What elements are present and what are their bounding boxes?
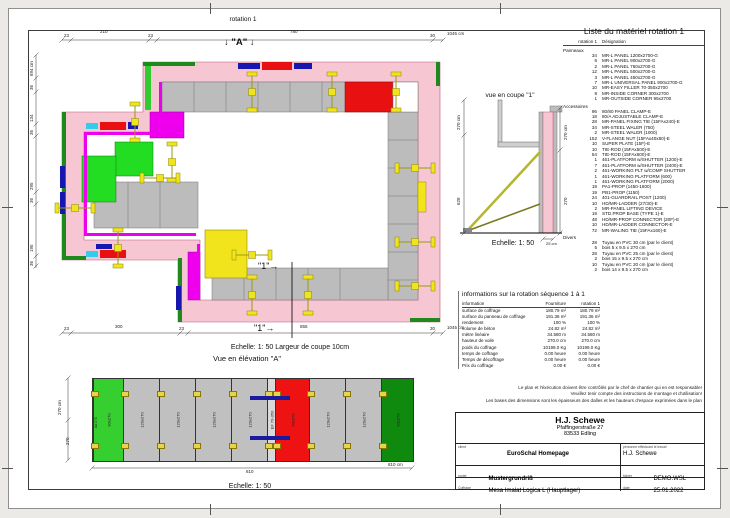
designation-column-header: Désignation: [602, 39, 626, 44]
material-designation: MR-WALING TIE (15FAx160)-E: [602, 228, 667, 233]
client-cell: client EuroSchal Homepage: [456, 444, 621, 465]
dim-label: 36: [30, 198, 35, 203]
material-designation: MR-OUTSIDE CORNER 95x2700: [602, 96, 671, 101]
dim-label: 195: [30, 244, 35, 252]
material-rows-panneaux: 34 MR-L PANEL 1200x2700-G 6 MR-L PANEL 9…: [563, 53, 705, 102]
date-cell: date 25.01.2022: [621, 478, 704, 491]
rotation-info-table: informations sur la rotation séquence 1 …: [458, 291, 600, 369]
arrow-down-icon: ↓: [250, 37, 255, 48]
dim-label: 295: [30, 182, 35, 190]
dim-label: 694 cm: [30, 61, 35, 76]
title-block: H.J. Schewe Pfaffingerstraße 27 83533 Ed…: [455, 412, 705, 490]
material-designation: bois 14 x 9.5 x 270 cm: [602, 267, 648, 272]
material-list-header: rotation 1 Désignation: [563, 39, 705, 46]
material-row: 1 MR-OUTSIDE CORNER 95x2700: [563, 96, 705, 101]
formwork-value: Mesa Imalat Logica L (Hauptlager): [488, 488, 580, 494]
dim-label: 23: [148, 34, 153, 39]
disclaimer-line: Les bases des dimensions sont les épaiss…: [370, 398, 702, 404]
section-cut-marker: "1"→: [254, 324, 274, 334]
crop-mark: [500, 3, 501, 14]
elevation-scale: Echelle: 1: 50: [180, 483, 320, 491]
section-title: vue en coupe "1": [460, 92, 560, 99]
elevation-panel: 120x270: [159, 379, 195, 461]
elevation-panel: 120x270: [309, 379, 345, 461]
plan-title: rotation 1: [198, 16, 288, 23]
panel-size-label: 90x270: [395, 413, 400, 426]
date-value: 25.01.2022: [653, 488, 683, 494]
dim-label: 780: [290, 30, 298, 35]
material-list: Liste du matériel rotation 1 rotation 1 …: [563, 26, 705, 272]
drawing-sheet: rotation 1 ↓ "A" ↓ "1"→ "1"→ 23 210 23 7…: [0, 0, 730, 518]
crop-mark: [210, 504, 211, 515]
elevation-panel: 120x270: [231, 379, 267, 461]
dim-label: 855: [300, 325, 308, 330]
crop-mark: [717, 468, 728, 469]
panel-size-label: EF 70-350: [269, 411, 274, 430]
plan-scale-note: Echelle: 1: 50 Largeur de coupe 10cm: [160, 344, 420, 352]
dim-label: 300: [115, 325, 123, 330]
info-row: Prix du coffrage 0.00 € 0.00 €: [462, 363, 600, 369]
panel-size-label: 90x270: [290, 413, 295, 426]
waler-bar: [250, 436, 290, 440]
info-rows: surface de coffrage 180.79 m² 180.79 m² …: [462, 308, 600, 369]
section-cut-marker: "1"→: [258, 262, 278, 272]
info-column-header: information: [462, 301, 530, 306]
dim-label: 1045 cm: [447, 32, 464, 37]
dim-label: 810 cm: [388, 463, 403, 468]
crop-mark: [717, 207, 728, 208]
worker-label: personne effectuant le travail: [623, 445, 702, 449]
elevation-panel-band: 90x270 120x270 120x270 120x270 120x270 E…: [92, 378, 414, 462]
panel-size-label: 120x270: [139, 412, 144, 427]
section-marker-label: "1": [258, 261, 269, 271]
section-marker-label: "1": [254, 323, 265, 333]
material-list-title: Liste du matériel rotation 1: [563, 26, 705, 36]
client-label: client: [458, 445, 618, 449]
project-cell: projet Mustergrundriß: [456, 466, 621, 477]
dim-label: 36: [30, 85, 35, 90]
dim-label: 36: [30, 261, 35, 266]
elevation-panel: 120x270: [123, 379, 159, 461]
info-fourniture-value: 0.00 €: [530, 363, 566, 369]
crop-mark: [210, 3, 211, 14]
crop-mark: [500, 504, 501, 515]
elevation-marker-label: "A": [231, 37, 247, 48]
qty-column-header: rotation 1: [563, 39, 597, 44]
info-table-header: information Fourniture rotation 1: [462, 301, 600, 308]
dim-label: 810: [246, 470, 254, 475]
company-name: H.J. Schewe: [456, 415, 704, 425]
info-label: Prix du coffrage: [462, 363, 530, 369]
material-qty: 72: [563, 228, 597, 233]
date-label: date: [623, 486, 649, 490]
dim-label: 628: [457, 197, 462, 205]
company-address-line2: 83533 Edling: [456, 431, 704, 437]
dim-label: 23: [179, 327, 184, 332]
panel-size-label: 120x270: [361, 412, 366, 427]
dim-label: 23: [64, 34, 69, 39]
formwork-label: Coffrage: [458, 486, 484, 490]
dim-label: 270 cm: [58, 400, 63, 415]
company-block: H.J. Schewe Pfaffingerstraße 27 83533 Ed…: [456, 413, 704, 444]
crop-mark: [2, 468, 13, 469]
info-table-title: informations sur la rotation séquence 1 …: [462, 291, 600, 298]
formwork-cell: Coffrage Mesa Imalat Logica L (Hauptlage…: [456, 478, 621, 491]
material-row: 2 bois 14 x 9.5 x 270 cm: [563, 267, 705, 272]
material-rows-divers: 28 Tuyau en PVC 30 cm (par le client) 5 …: [563, 240, 705, 272]
material-qty: 2: [563, 267, 597, 272]
crop-mark: [2, 207, 13, 208]
waler-bar: [250, 396, 290, 400]
dim-label: 270 cm: [457, 115, 462, 130]
elevation-cut-marker: ↓ "A" ↓: [224, 38, 255, 48]
disclaimer: Le plan et l'éxécution doivent être cont…: [370, 385, 702, 404]
dim-label: 36: [30, 130, 35, 135]
file-cell: fichier DEMO.WSL: [621, 466, 704, 477]
panel-size-label: 120x270: [175, 412, 180, 427]
panel-size-label: 120x270: [247, 412, 252, 427]
elevation-title: Vue en élévation "A": [117, 355, 377, 363]
panel-size-label: 120x270: [325, 412, 330, 427]
worker-value: H.J. Schewe: [623, 451, 702, 457]
dim-label: 210: [100, 30, 108, 35]
client-value: EuroSchal Homepage: [458, 451, 618, 457]
dim-label: 30: [430, 327, 435, 332]
material-row: 72 MR-WALING TIE (15FAx160)-E: [563, 228, 705, 233]
info-rotation-value: 0.00 €: [566, 363, 600, 369]
rotation1-column-header: rotation 1: [566, 301, 600, 306]
dim-label: 23: [64, 327, 69, 332]
panel-size-label: 120x270: [211, 412, 216, 427]
dim-label: 270: [66, 437, 71, 445]
fourniture-column-header: Fourniture: [530, 301, 566, 306]
arrow-down-icon: ↓: [224, 37, 229, 48]
arrow-right-icon: →: [265, 323, 274, 333]
panel-size-label: 90x270: [106, 413, 111, 426]
elevation-panel: 120x270: [195, 379, 231, 461]
arrow-right-icon: →: [269, 261, 278, 271]
dim-label: 134: [30, 114, 35, 122]
material-rows-accessoires: 96 80/80 PANEL CLAMP-E 18 80/A ADJUSTABL…: [563, 109, 705, 233]
elevation-panel: 90x270: [275, 379, 309, 461]
material-qty: 1: [563, 96, 597, 101]
worker-cell: personne effectuant le travail H.J. Sche…: [621, 444, 704, 465]
dim-label: Ad 270: [95, 417, 99, 428]
section-scale: Echelle: 1: 50: [458, 240, 568, 248]
dim-label: 30: [430, 34, 435, 39]
